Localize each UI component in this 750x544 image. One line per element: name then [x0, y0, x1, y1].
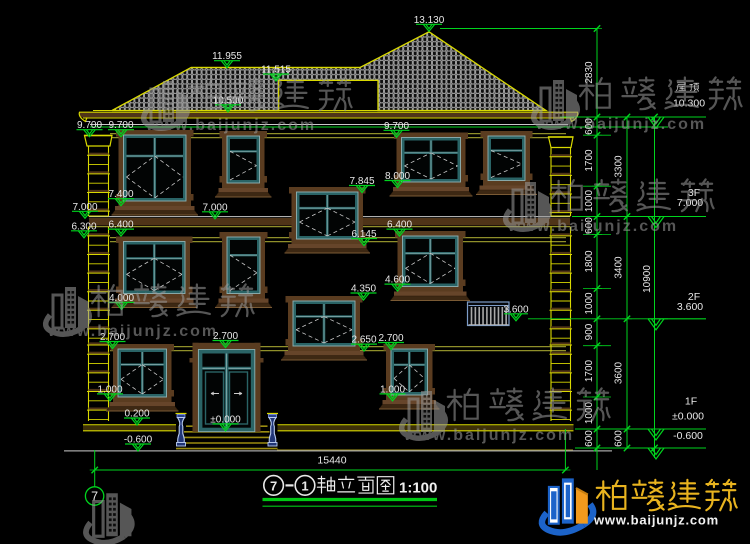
svg-text:600: 600	[584, 430, 595, 447]
svg-text:15440: 15440	[317, 455, 346, 467]
svg-text:1000: 1000	[584, 401, 595, 424]
svg-text:www.baijunjz.com: www.baijunjz.com	[593, 513, 719, 528]
svg-text:600: 600	[614, 430, 625, 447]
svg-text:3600: 3600	[614, 361, 625, 384]
svg-text:1000: 1000	[584, 189, 595, 212]
svg-text:10.300: 10.300	[673, 98, 705, 110]
svg-text:1800: 1800	[584, 250, 595, 273]
svg-text:1: 1	[301, 478, 308, 493]
svg-text:1F: 1F	[685, 395, 697, 407]
svg-text:3400: 3400	[614, 256, 625, 279]
svg-text:1:100: 1:100	[399, 480, 437, 497]
svg-text:-0.600: -0.600	[673, 430, 703, 442]
svg-text:3300: 3300	[614, 155, 625, 178]
svg-text:10900: 10900	[642, 265, 653, 293]
svg-text:7: 7	[270, 478, 277, 493]
svg-text:1700: 1700	[584, 149, 595, 172]
svg-text:900: 900	[584, 323, 595, 340]
svg-text:±0.000: ±0.000	[672, 410, 704, 422]
svg-text:1000: 1000	[584, 292, 595, 315]
svg-text:1700: 1700	[584, 359, 595, 382]
svg-text:3.600: 3.600	[677, 301, 703, 313]
